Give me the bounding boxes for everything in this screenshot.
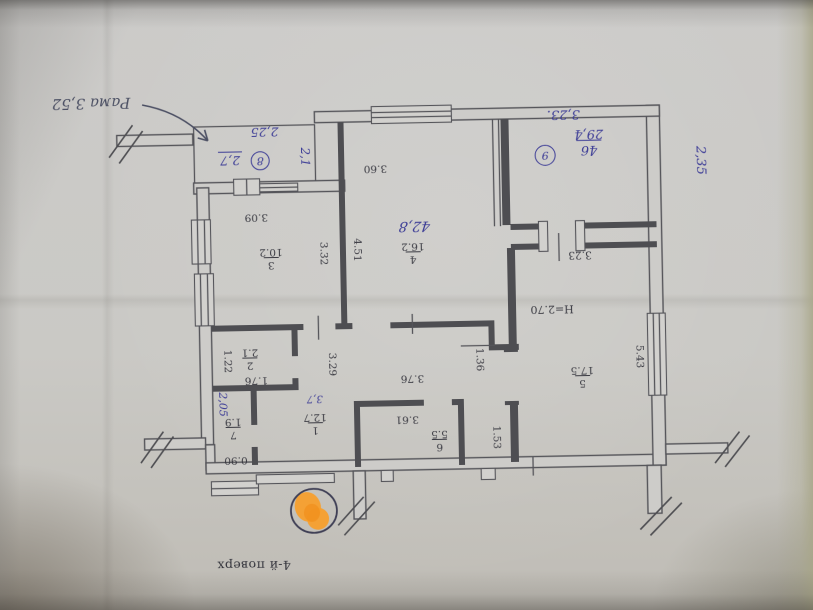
circled-number-9: 9 [534, 145, 555, 166]
room4-label: 416.2 [401, 239, 425, 264]
dim-hall-top: 3.76 [401, 372, 425, 383]
circled-number-8: 8 [251, 151, 270, 170]
dim-room5-nook: 3.23 [568, 249, 592, 260]
handwritten-balcony-mark: 8 [251, 151, 270, 170]
room4-area: 16.2 [401, 239, 425, 251]
room5-number: 5 [575, 375, 590, 389]
room3-number: 3 [264, 257, 279, 271]
dim-pass-width: 1.36 [474, 348, 485, 372]
ceiling-height-note: H=2.70 [530, 303, 574, 315]
handwritten-area-fraction: 4629,4 [574, 125, 604, 156]
dim-room2-bottom: 1.76 [245, 374, 269, 385]
room1-area: 12.7 [303, 410, 327, 422]
room3-label: 310.2 [259, 245, 283, 270]
handwritten-hall-note: 2,05 [217, 392, 228, 417]
room1-number: 1 [308, 422, 323, 436]
room3-area: 10.2 [259, 245, 283, 257]
room5-area: 17.5 [570, 363, 594, 375]
handwritten-room4-area: 42,8 [398, 219, 431, 234]
floor-caption: 4-й поверх [217, 558, 291, 572]
handwritten-hall-area: 3,7 [307, 393, 323, 403]
floorplan-sheet: 3.09 310.2 3.32 4.51 3.60 416.2 42,8 22.… [0, 0, 813, 610]
handwritten-frame-note: Рама 3,52 [52, 95, 131, 112]
room5-label: 517.5 [570, 363, 594, 388]
handwritten-balcony-area: 2,7 [218, 154, 242, 167]
room2-label: 22.1 [241, 345, 258, 370]
handwritten-tr-room-side: 2,35 [694, 146, 708, 175]
dim-room5-right: 5.43 [634, 345, 645, 369]
area-living: 29,4 [574, 125, 603, 140]
room2-area: 2.1 [241, 345, 258, 357]
room4-number: 4 [406, 251, 421, 265]
room6-area: 5.5 [431, 427, 448, 439]
room7-label: 71.9 [225, 415, 242, 440]
room1-label: 112.7 [303, 410, 327, 435]
dim-room4-left: 4.51 [351, 238, 362, 262]
area-total: 46 [577, 139, 602, 156]
dim-room7-bottom: 0.90 [224, 455, 248, 466]
dim-room3-top: 3.09 [244, 211, 268, 222]
handwritten-tr-room-mark: 9 [534, 145, 555, 166]
dim-room3-right: 3.32 [318, 242, 329, 266]
dim-room2-left: 1.22 [222, 350, 233, 374]
room7-number: 7 [226, 426, 241, 440]
handwritten-balcony-width: 2,25 [251, 125, 279, 138]
room6-label: 65.5 [431, 427, 448, 452]
dim-room4-top: 3.60 [364, 163, 388, 174]
room2-number: 2 [243, 357, 258, 371]
orange-marker [291, 488, 338, 533]
balcony-area-value: 2,7 [218, 151, 242, 168]
handwritten-balcony-side: 2,1 [299, 147, 311, 166]
floorplan-photo: 3.09 310.2 3.32 4.51 3.60 416.2 42,8 22.… [0, 0, 813, 610]
handwritten-tr-room-dim: 3,23. [547, 107, 580, 121]
dim-hall-width: 3.29 [327, 353, 338, 377]
interior-walls [208, 116, 662, 470]
dim-room6-top: 3.61 [395, 414, 419, 425]
room6-number: 6 [432, 438, 447, 452]
floorplan-drawing [0, 0, 813, 610]
dim-pass-height: 1.53 [491, 426, 502, 450]
